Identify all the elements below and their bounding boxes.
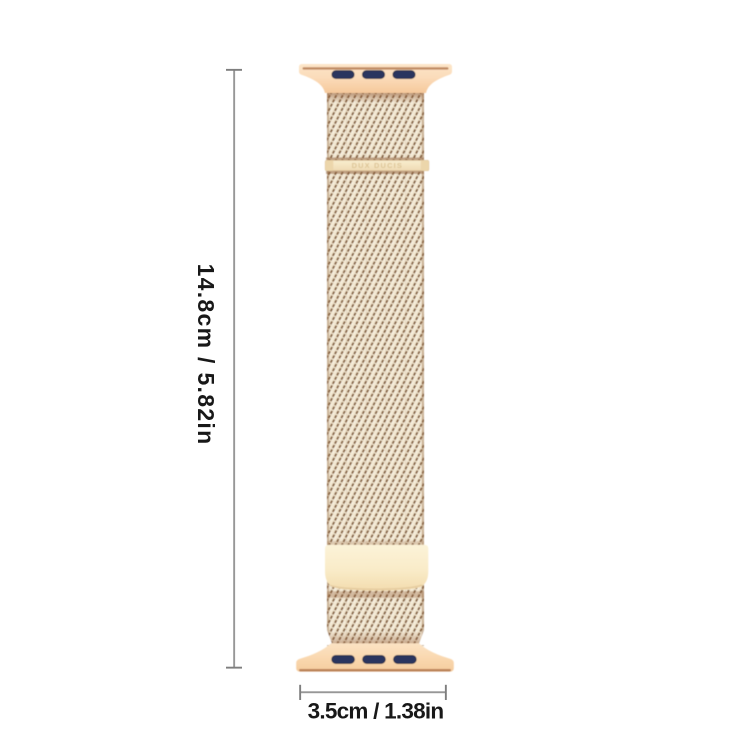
svg-text:DUX DUCIS: DUX DUCIS (352, 161, 403, 170)
svg-text:3.5cm / 1.38in: 3.5cm / 1.38in (308, 698, 444, 723)
svg-text:14.8cm / 5.82in: 14.8cm / 5.82in (193, 264, 219, 446)
